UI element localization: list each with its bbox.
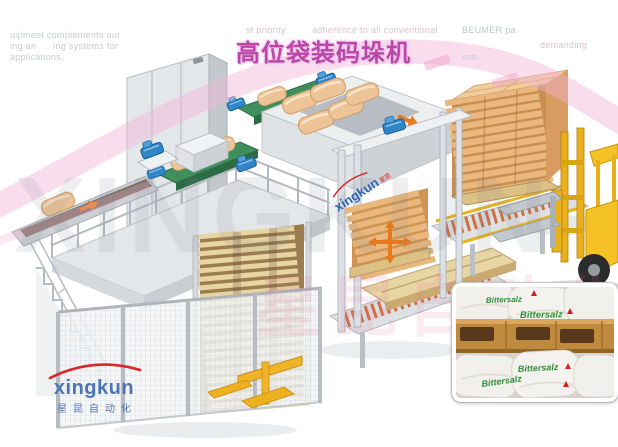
page-title: 高位袋装码垛机 [236, 33, 411, 68]
brochure-page: XINGKUN 星昆自动化 xingkun 星昆 uipment complem… [0, 0, 618, 447]
faint-text-tl1: uipment complements our [10, 30, 120, 40]
photo-bags-bottom [456, 349, 614, 398]
faint-text-tr4: demanding [540, 40, 587, 50]
brand-watermark-text: XINGKUN [14, 154, 554, 275]
inset-photo: Bittersalz Bittersalz Bittersalz [452, 283, 618, 402]
logo-name: xingkun [38, 378, 150, 398]
brand-logo: xingkun 星昆自动化 [38, 362, 150, 415]
bittersalz-label: Bittersalz [486, 295, 522, 305]
faint-text-tl3: applications. [10, 52, 64, 62]
faint-text-tr5: con... [462, 52, 486, 62]
inset-photo-art: Bittersalz Bittersalz Bittersalz [456, 287, 614, 398]
faint-text-tr3: BEUMER pa [462, 25, 516, 35]
photo-wood-pallet [456, 319, 614, 353]
logo-caption-cn: 星昆自动化 [44, 400, 150, 415]
faint-text-tl2: ing an ing systems for [10, 41, 118, 51]
